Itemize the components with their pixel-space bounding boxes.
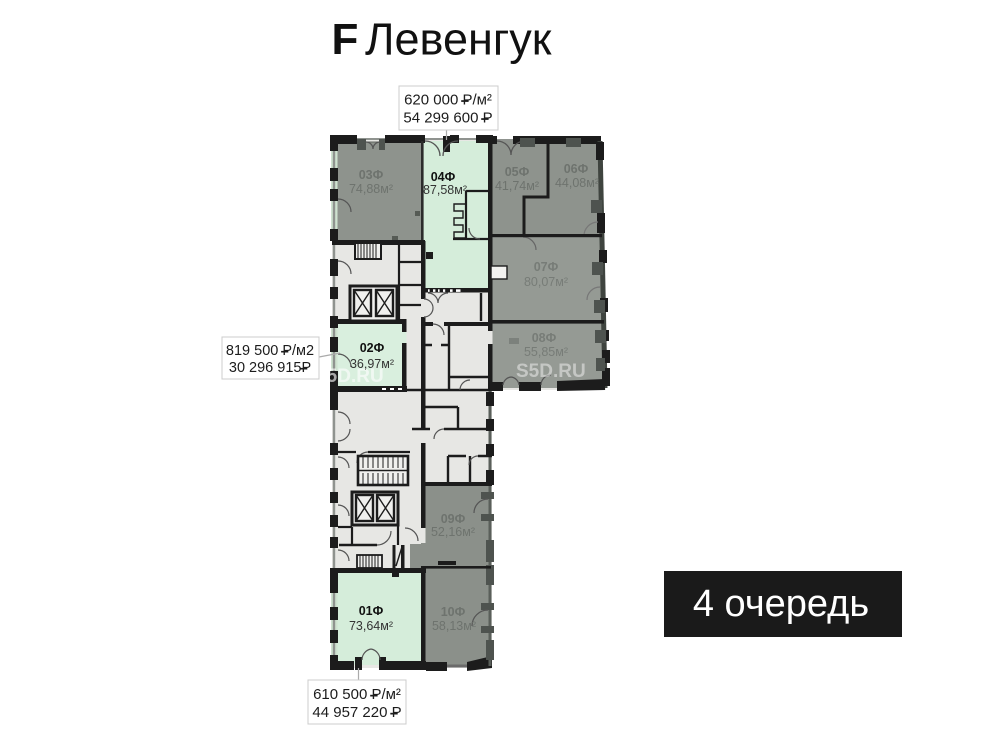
svg-text:80,07м²: 80,07м² (524, 275, 568, 289)
svg-text:02Ф: 02Ф (360, 341, 385, 355)
svg-text:10Ф: 10Ф (441, 605, 466, 619)
svg-text:Левенгук: Левенгук (365, 14, 552, 65)
svg-text:44 957 220 Р: 44 957 220 Р (312, 704, 401, 721)
svg-text:73,64м²: 73,64м² (349, 619, 393, 633)
svg-text:58,13м²: 58,13м² (432, 619, 476, 633)
svg-text:54 299 600 Р: 54 299 600 Р (403, 110, 492, 127)
svg-text:06Ф: 06Ф (564, 162, 589, 176)
svg-text:01Ф: 01Ф (359, 604, 384, 618)
svg-text:36,97м²: 36,97м² (350, 357, 394, 371)
svg-text:620 000 Р/м²: 620 000 Р/м² (404, 92, 492, 109)
svg-text:55,85м²: 55,85м² (524, 345, 568, 359)
svg-text:03Ф: 03Ф (359, 168, 384, 182)
svg-text:09Ф: 09Ф (441, 512, 466, 526)
svg-text:30 296 915Р: 30 296 915Р (229, 360, 311, 376)
svg-text:S5D.RU: S5D.RU (516, 361, 586, 382)
svg-text:44,08м²: 44,08м² (555, 176, 599, 190)
svg-text:07Ф: 07Ф (534, 260, 559, 274)
svg-text:08Ф: 08Ф (532, 331, 557, 345)
svg-text:74,88м²: 74,88м² (349, 182, 393, 196)
svg-text:4 очередь: 4 очередь (693, 583, 869, 625)
svg-text:52,16м²: 52,16м² (431, 525, 475, 539)
svg-text:05Ф: 05Ф (505, 165, 530, 179)
svg-text:87,58м²: 87,58м² (423, 183, 467, 197)
svg-text:04Ф: 04Ф (431, 170, 456, 184)
svg-text:819 500 Р/м2: 819 500 Р/м2 (226, 343, 314, 359)
svg-text:41,74м²: 41,74м² (495, 179, 539, 193)
svg-text:610 500 Р/м²: 610 500 Р/м² (313, 686, 401, 703)
svg-text:F: F (332, 15, 359, 64)
